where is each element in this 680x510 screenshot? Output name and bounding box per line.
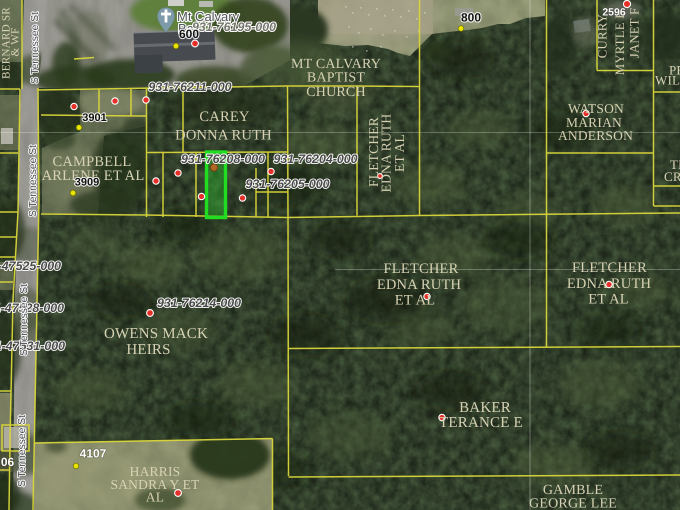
svg-text:931-76208-000: 931-76208-000 [181, 152, 265, 166]
svg-text:S Tennessee St: S Tennessee St [30, 12, 41, 84]
svg-text:FLETCHER: FLETCHER [384, 261, 459, 277]
svg-text:ANDERSON: ANDERSON [558, 128, 633, 143]
svg-text:& WF: & WF [10, 28, 22, 57]
svg-text:CRE: CRE [664, 169, 680, 184]
svg-text:2596: 2596 [602, 7, 626, 19]
svg-text:3901: 3901 [82, 112, 106, 124]
svg-text:CURRY: CURRY [595, 14, 609, 58]
svg-text:931-76205-000: 931-76205-000 [245, 177, 329, 191]
svg-text:FLETCHER: FLETCHER [572, 260, 647, 276]
svg-text:S Tennessee St: S Tennessee St [17, 415, 28, 487]
svg-text:HEIRS: HEIRS [126, 342, 170, 358]
svg-text:OWENS MACK: OWENS MACK [104, 326, 208, 342]
svg-text:GEORGE LEE: GEORGE LEE [529, 497, 617, 510]
svg-text:931-76211-000: 931-76211-000 [148, 80, 231, 94]
svg-text:931-76204-000: 931-76204-000 [273, 152, 357, 166]
svg-text:EDNA RUTH: EDNA RUTH [377, 277, 462, 293]
svg-text:600: 600 [179, 27, 199, 41]
svg-text:ET AL: ET AL [392, 134, 407, 172]
svg-text:BAPTIST: BAPTIST [307, 71, 365, 86]
svg-text:JANET F: JANET F [627, 8, 641, 59]
svg-text:931-76195-000: 931-76195-000 [192, 20, 276, 34]
svg-text:WATSON: WATSON [568, 101, 624, 116]
svg-text:800: 800 [461, 11, 481, 25]
svg-text:DONNA RUTH: DONNA RUTH [175, 128, 272, 144]
svg-text:TERANCE E: TERANCE E [439, 415, 523, 431]
svg-text:S Tennessee St: S Tennessee St [19, 284, 30, 356]
svg-text:S Tennessee St: S Tennessee St [28, 145, 39, 217]
svg-text:MYRTLE E: MYRTLE E [613, 11, 627, 75]
svg-text:3909: 3909 [75, 177, 99, 189]
svg-text:931-47531-000: 931-47531-000 [0, 339, 65, 353]
svg-text:ET AL: ET AL [588, 292, 629, 308]
svg-text:4107: 4107 [80, 447, 107, 461]
svg-text:ET AL: ET AL [395, 293, 436, 309]
svg-text:06: 06 [1, 455, 15, 469]
svg-text:931-76214-000: 931-76214-000 [157, 296, 241, 310]
svg-text:CAREY: CAREY [199, 109, 249, 125]
svg-text:BAKER: BAKER [459, 400, 511, 416]
svg-text:AL: AL [146, 490, 164, 505]
svg-text:WILL: WILL [655, 73, 680, 88]
svg-text:CHURCH: CHURCH [306, 85, 366, 100]
svg-text:EDNA RUTH: EDNA RUTH [567, 276, 652, 292]
svg-text:931-47528-000: 931-47528-000 [0, 301, 64, 315]
svg-text:931-47525-000: 931-47525-000 [0, 259, 61, 273]
